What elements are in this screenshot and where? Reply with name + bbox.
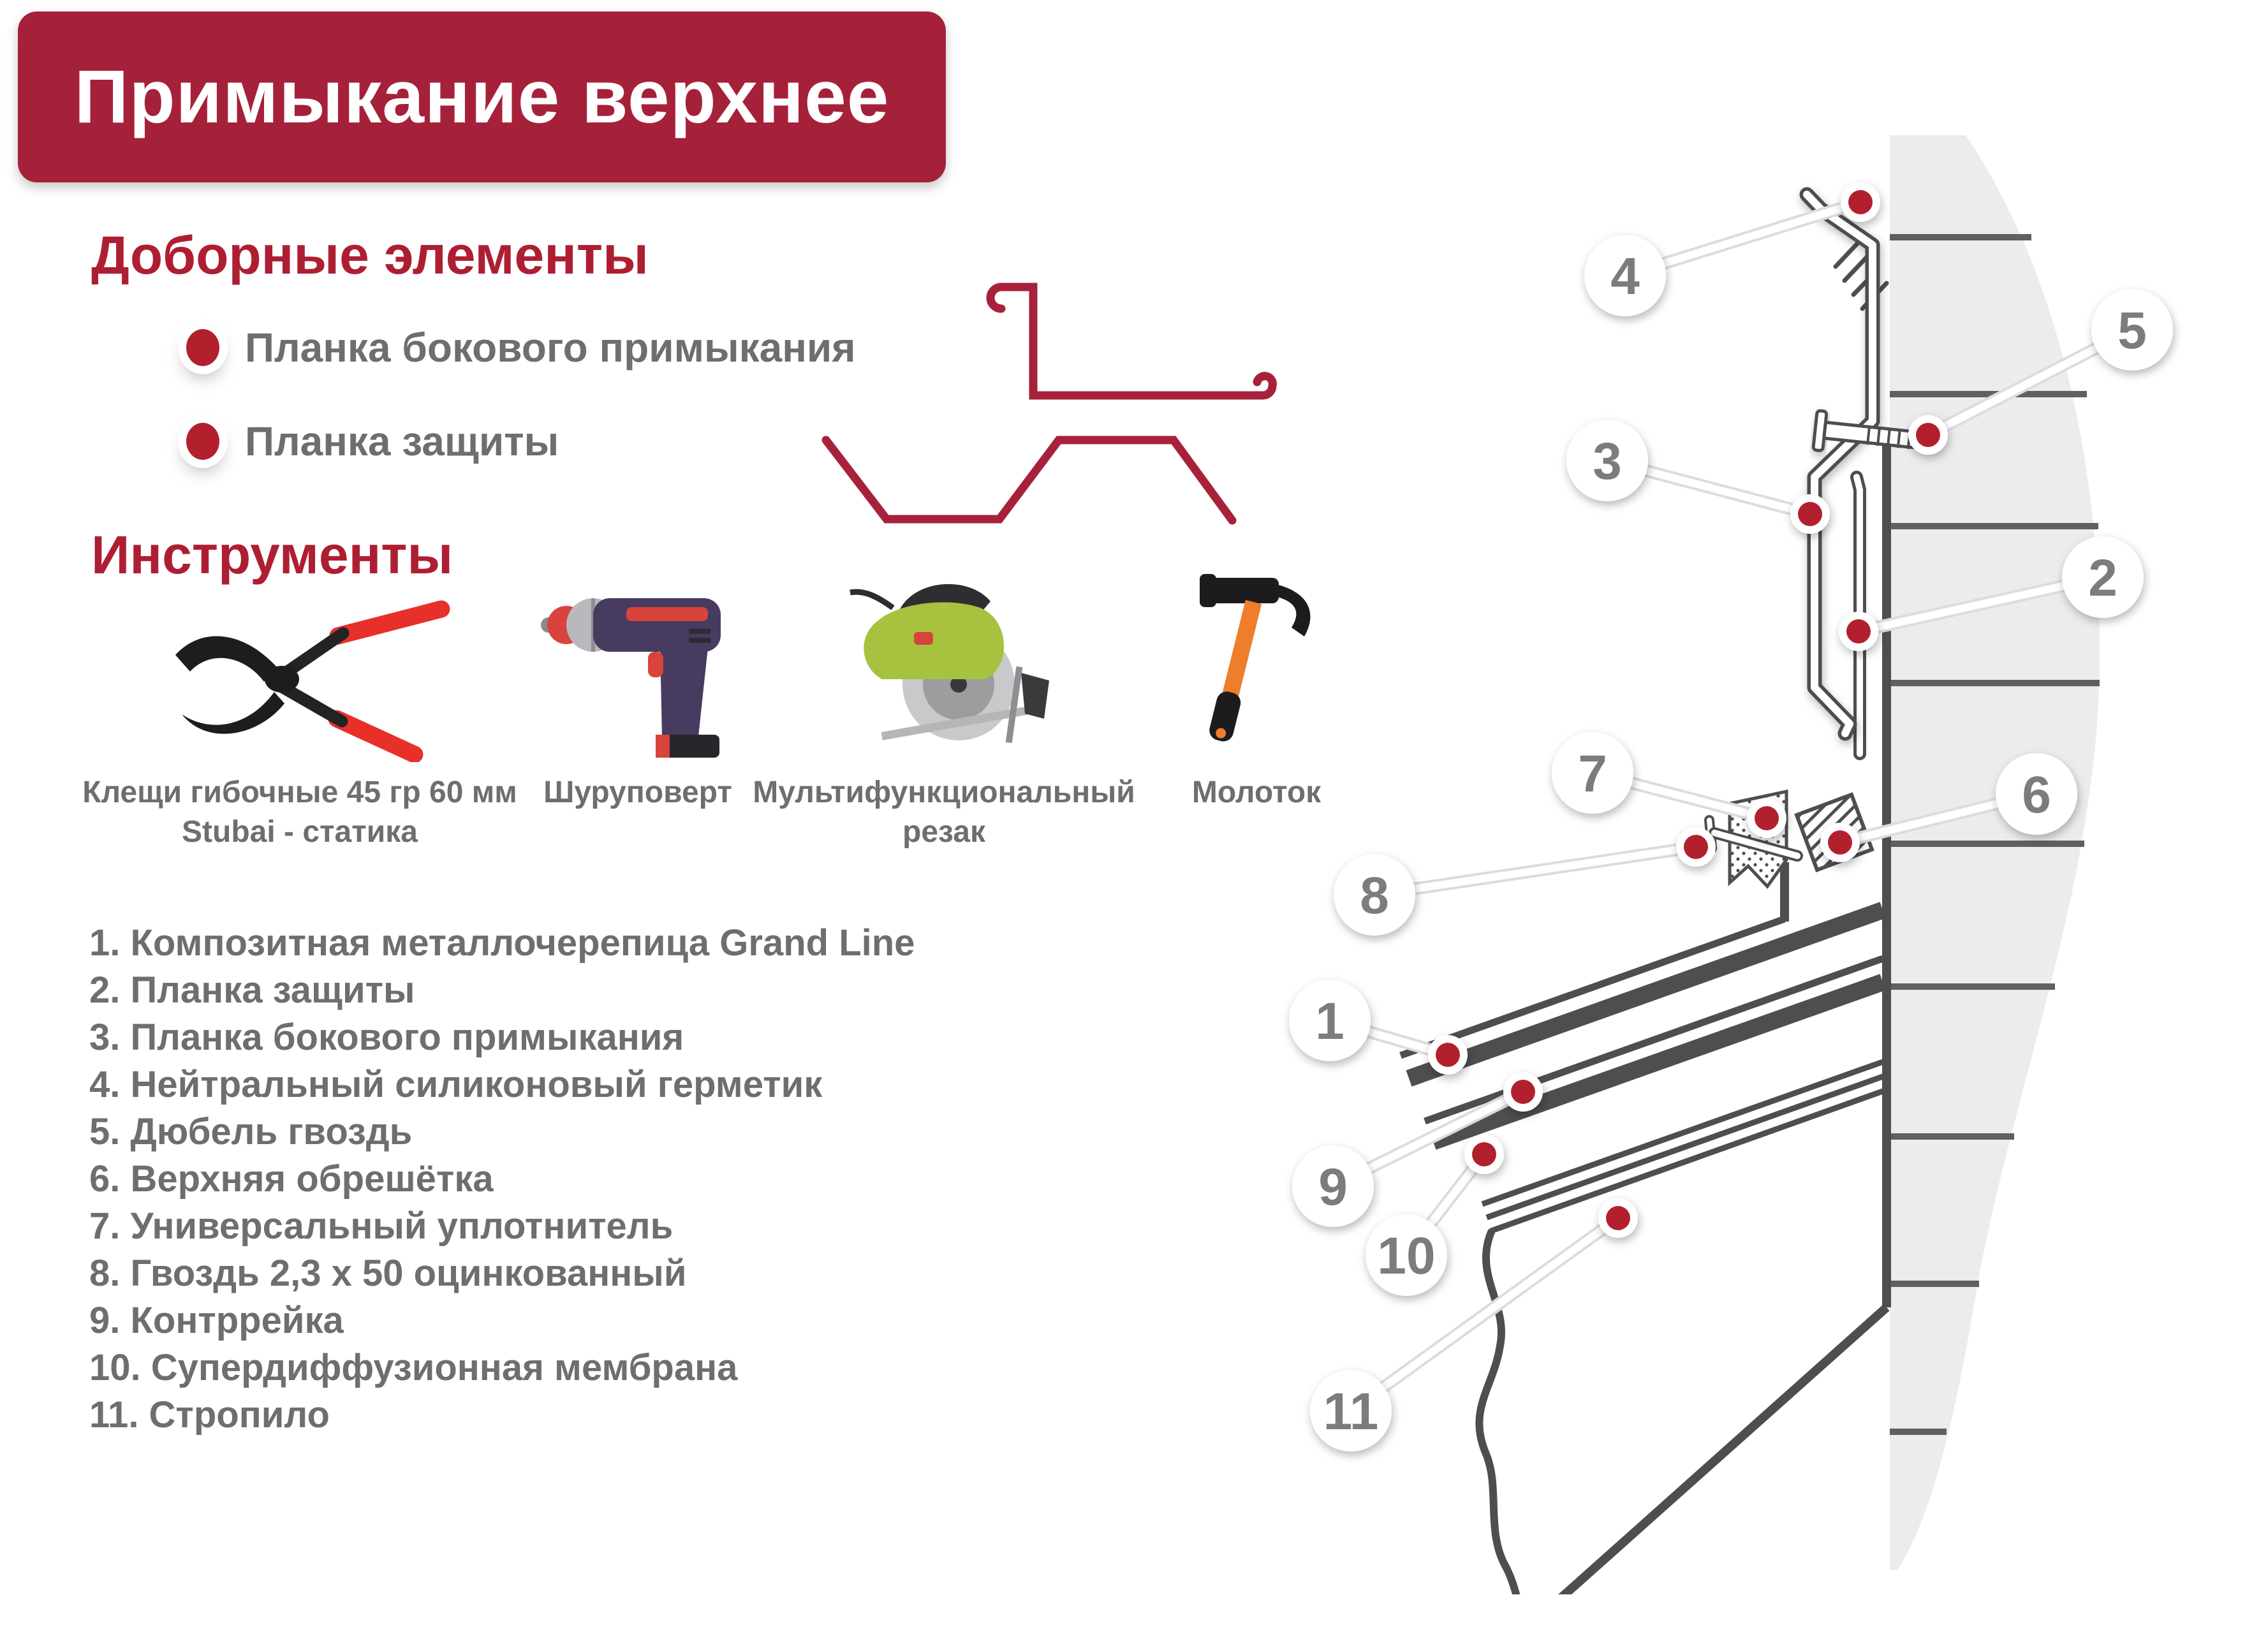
legend-item: 6. Верхняя обрешётка [89,1156,1212,1203]
dot-4 [1841,182,1880,222]
membrane-line-3 [1491,1091,1883,1231]
bullet-dot-icon [186,423,219,460]
legend-item: 8. Гвоздь 2,3 х 50 оцинкованный [89,1250,1212,1297]
legend-item: 9. Контррейка [89,1297,1212,1344]
callout-7: 7 [1552,732,1633,814]
svg-text:10: 10 [1377,1227,1435,1285]
tool-label-pliers: Клещи гибочные 45 гр 60 мм Stubai - стат… [77,773,523,852]
callout-2: 2 [2062,536,2144,618]
callout-10: 10 [1366,1214,1447,1296]
side-abutment-strip-profile-icon [990,287,1272,395]
legend-item: 2. Планка защиты [89,967,1212,1014]
junction-detail-diagram: 4 5 3 2 7 6 8 1 9 10 11 [1276,64,2268,1594]
circular-saw-icon [820,571,1075,768]
callout-6: 6 [1996,753,2077,835]
header-banner: Примыкание верхнее [18,11,946,182]
svg-text:4: 4 [1610,247,1640,305]
element-item-label: Планка защиты [245,418,559,465]
legend-item: 3. Планка бокового примыкания [89,1014,1212,1061]
tools-section-title: Инструменты [91,524,453,586]
svg-text:6: 6 [2022,766,2051,824]
callout-9: 9 [1292,1145,1374,1227]
strip-profile-drawings [816,268,1314,574]
dot-2 [1839,612,1878,651]
element-item-protect-strip: Планка защиты [177,418,559,465]
tool-label-drill: Шуруповерт [523,773,753,812]
dot-3 [1790,494,1830,534]
metal-tile-band [1409,910,1883,1078]
callout-4: 4 [1584,235,1666,316]
svg-text:9: 9 [1318,1158,1348,1216]
dot-1 [1428,1035,1468,1075]
svg-text:5: 5 [2117,302,2147,360]
element-item-side-strip: Планка бокового примыкания [177,324,856,371]
dot-9 [1503,1072,1543,1112]
membrane-line-1 [1482,1062,1883,1204]
svg-text:1: 1 [1315,992,1344,1050]
svg-text:8: 8 [1360,867,1389,925]
bullet-dot-icon [186,329,219,366]
legend-list: 1. Композитная металлочерепица Grand Lin… [89,920,1212,1439]
dot-8 [1676,827,1716,867]
rafter-bottom-edge [1526,1307,1887,1594]
legend-item: 11. Стропило [89,1392,1212,1439]
callout-8: 8 [1334,854,1415,936]
callout-11: 11 [1310,1370,1392,1452]
svg-text:11: 11 [1323,1383,1379,1441]
elements-section-title: Доборные элементы [91,224,649,286]
protection-strip-profile-icon [826,440,1232,520]
dot-6 [1820,823,1860,862]
leader-8 [1374,847,1696,895]
svg-text:3: 3 [1593,432,1622,490]
drill-icon [529,574,746,772]
legend-item: 4. Нейтральный силиконовый герметик [89,1061,1212,1108]
wall-section [1890,135,2100,1570]
element-item-label: Планка бокового примыкания [245,324,856,371]
legend-item: 5. Дюбель гвоздь [89,1108,1212,1156]
dot-11 [1598,1198,1638,1238]
callout-5: 5 [2091,289,2173,371]
legend-item: 10. Супердиффузионная мембрана [89,1344,1212,1392]
page: Примыкание верхнее Доборные элементы Пла… [0,0,2268,1632]
legend-item: 7. Универсальный уплотнитель [89,1203,1212,1250]
legend-item: 1. Композитная металлочерепица Grand Lin… [89,920,1212,967]
dot-5 [1908,415,1948,455]
svg-text:2: 2 [2088,549,2117,607]
page-title: Примыкание верхнее [75,54,890,140]
svg-text:7: 7 [1578,745,1607,803]
dot-10 [1464,1135,1504,1174]
pliers-icon [147,596,510,762]
callout-1: 1 [1289,980,1371,1061]
tool-label-saw: Мультифункциональный резак [753,773,1135,852]
callout-3: 3 [1566,420,1648,501]
dot-7 [1747,798,1786,838]
